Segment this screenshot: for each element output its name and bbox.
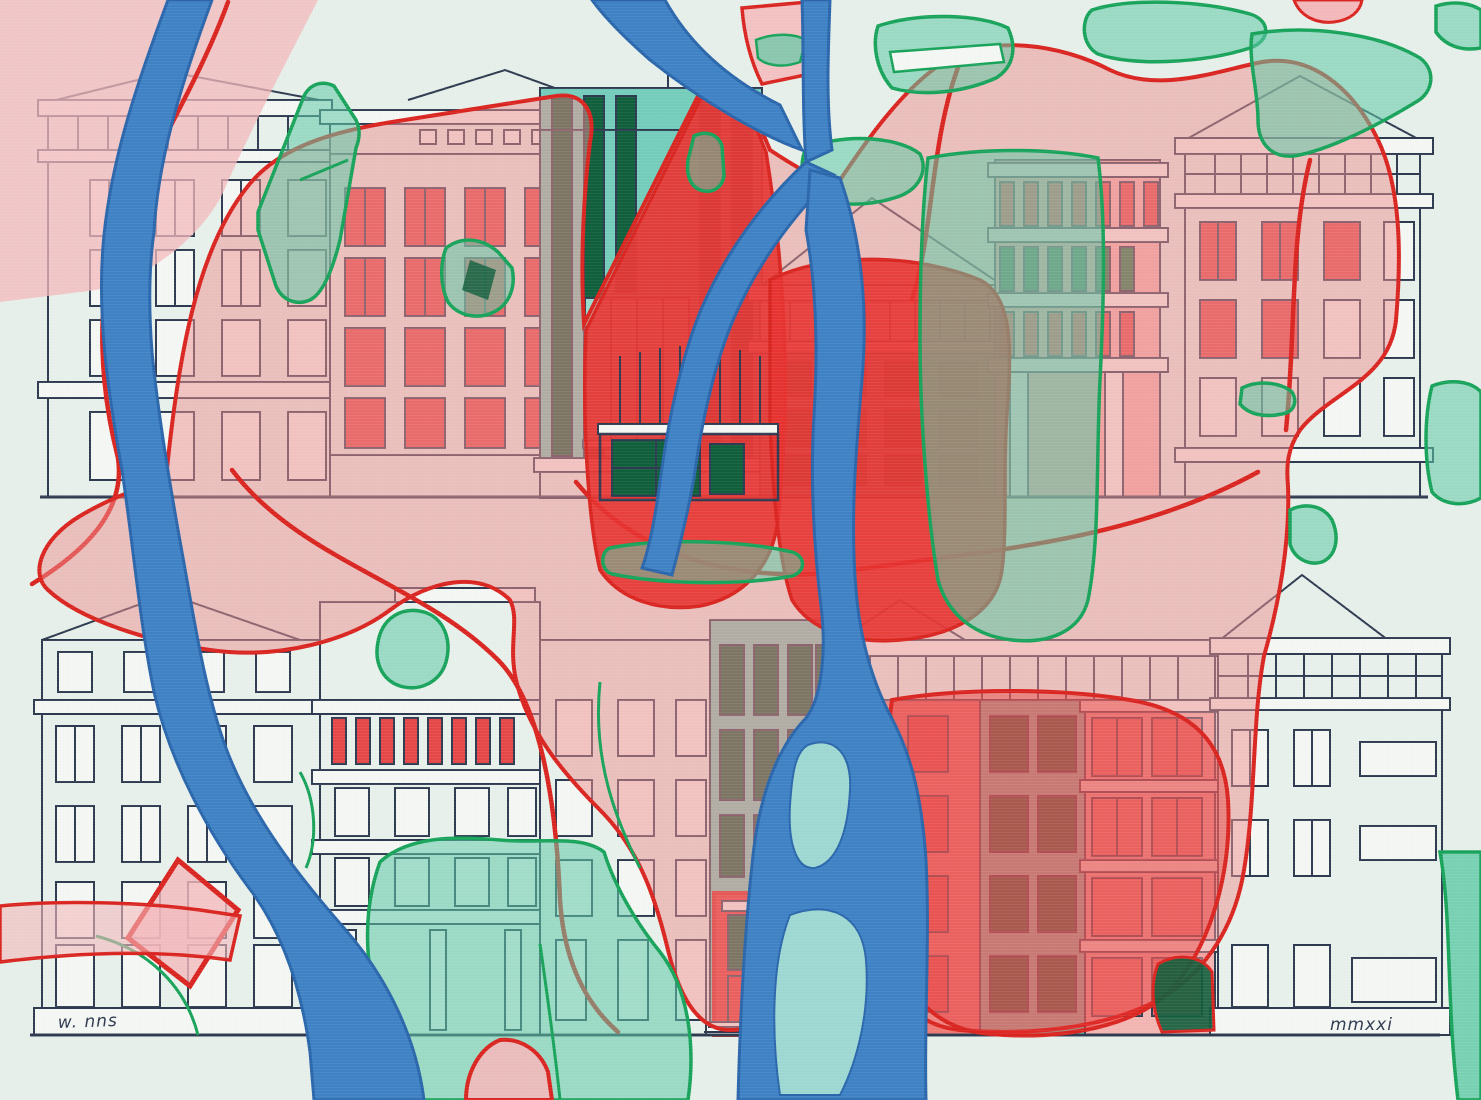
green-parcel-top-band — [1084, 2, 1265, 62]
green-parcel-tower-side — [688, 133, 725, 191]
green-parcel-right-edge — [1426, 382, 1481, 504]
date-inscription: mmxxi — [1330, 1015, 1393, 1035]
green-parcel-over-slab-block — [920, 151, 1104, 641]
green-blob-right-2 — [1290, 506, 1336, 563]
green-parcel-flag — [875, 16, 1013, 92]
river-island-2 — [774, 909, 866, 1095]
painting: w. nns mmxxi — [0, 0, 1481, 1100]
green-blob-mid — [377, 610, 448, 687]
dark-green-blob — [1153, 957, 1214, 1032]
green-bean-mid — [603, 542, 803, 583]
green-blob-right-1 — [1240, 383, 1295, 415]
pink-wedge-left — [0, 903, 240, 962]
painting-canvas: w. nns mmxxi — [0, 0, 1481, 1100]
artist-signature: w. nns — [57, 1011, 118, 1033]
